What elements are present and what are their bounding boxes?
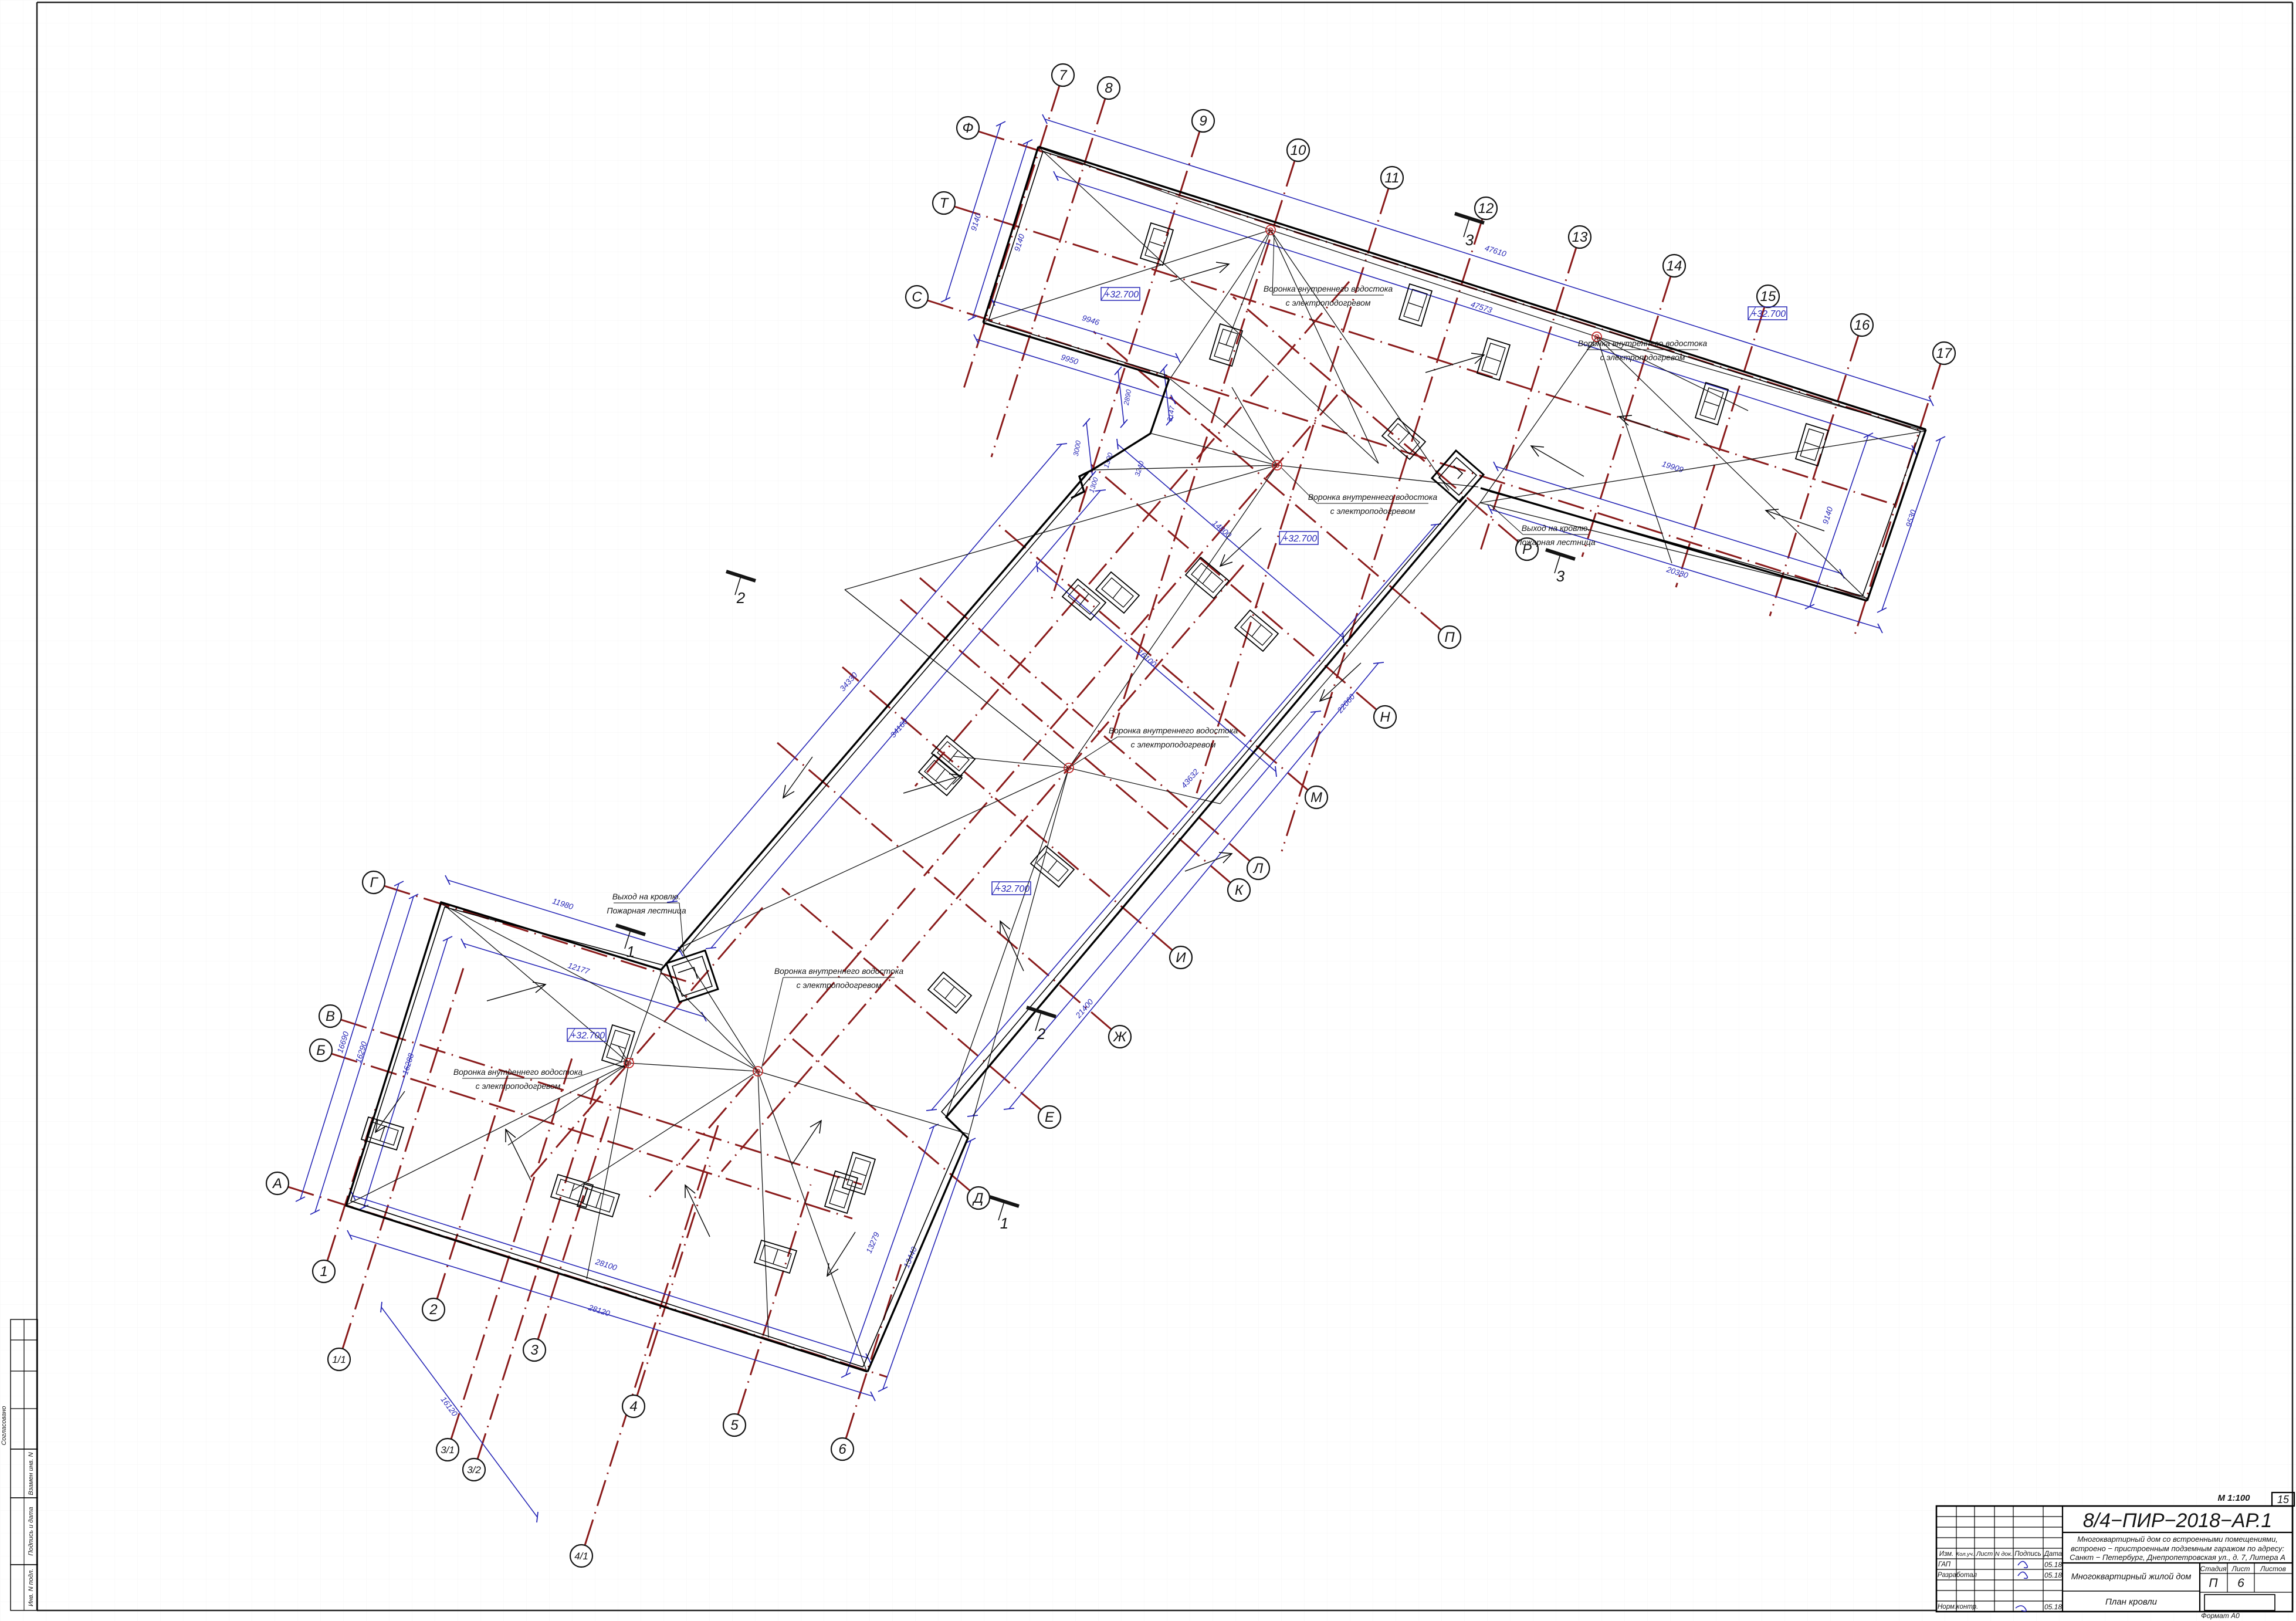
svg-text:Лист: Лист [2231,1565,2250,1573]
svg-text:Многоквартирный дом со встроен: Многоквартирный дом со встроенными помещ… [2077,1535,2278,1544]
svg-text:с электроподогревом: с электроподогревом [1286,298,1371,307]
svg-text:Л: Л [1252,861,1264,877]
svg-text:6: 6 [2237,1576,2244,1590]
svg-text:М: М [1310,790,1322,806]
svg-text:Воронка внутреннего водостока: Воронка внутреннего водостока [1109,726,1238,735]
svg-text:14: 14 [1667,258,1682,274]
svg-text:Лист: Лист [1976,1551,1993,1558]
svg-text:П: П [1444,630,1455,645]
svg-text:Согласовано: Согласовано [1,1406,8,1445]
svg-text:3/2: 3/2 [467,1464,481,1476]
svg-text:1: 1 [1000,1214,1008,1232]
svg-text:Разработал: Разработал [1938,1572,1977,1579]
svg-text:М 1:100: М 1:100 [2217,1493,2250,1503]
svg-text:с электроподогревом: с электроподогревом [1600,353,1685,362]
svg-text:05.18: 05.18 [2044,1571,2062,1579]
svg-text:+32.700: +32.700 [1752,309,1786,319]
svg-text:Листов: Листов [2260,1565,2286,1573]
svg-text:В: В [326,1009,335,1024]
svg-text:6: 6 [838,1441,846,1457]
svg-text:Ф: Ф [962,120,973,136]
svg-text:4/1: 4/1 [574,1551,588,1562]
svg-text:встроено − пристроенным подзем: встроено − пристроенным подземным гаражо… [2071,1544,2284,1553]
svg-text:05.18: 05.18 [2044,1561,2062,1569]
svg-text:11: 11 [1385,170,1400,186]
svg-text:Г: Г [370,875,378,891]
svg-text:5: 5 [730,1417,739,1433]
svg-text:П: П [2209,1576,2218,1590]
svg-text:8: 8 [1105,80,1113,96]
svg-text:+32.700: +32.700 [571,1031,605,1041]
svg-text:+32.700: +32.700 [1283,534,1317,544]
svg-text:Формат А0: Формат А0 [2201,1612,2240,1620]
svg-text:Норм.контр.: Норм.контр. [1938,1603,1978,1610]
svg-text:+32.700: +32.700 [1105,290,1139,300]
svg-text:Воронка внутреннего водостока: Воронка внутреннего водостока [1264,284,1393,293]
svg-text:05.18: 05.18 [2044,1603,2062,1611]
svg-text:Воронка внутреннего водостока: Воронка внутреннего водостока [1308,492,1438,502]
svg-text:2: 2 [736,589,746,607]
svg-text:Б: Б [316,1043,326,1058]
svg-text:17: 17 [1936,346,1953,361]
svg-text:Воронка внутреннего водостока: Воронка внутреннего водостока [453,1067,583,1077]
svg-text:Ж: Ж [1113,1029,1127,1045]
svg-text:Многоквартирный жилой дом: Многоквартирный жилой дом [2071,1572,2192,1582]
svg-text:3: 3 [1556,567,1565,585]
svg-text:3/1: 3/1 [441,1444,455,1456]
svg-text:3: 3 [530,1342,539,1358]
svg-text:А: А [272,1176,282,1192]
svg-text:Воронка внутреннего водостока: Воронка внутреннего водостока [1578,339,1708,348]
svg-text:С: С [912,289,922,305]
svg-text:15: 15 [2277,1494,2290,1505]
svg-text:Стадия: Стадия [2200,1565,2227,1573]
svg-text:9: 9 [1199,113,1207,129]
svg-text:8/4−ПИР−2018−АР.1: 8/4−ПИР−2018−АР.1 [2083,1510,2273,1532]
svg-text:Подпись и дата: Подпись и дата [28,1507,35,1555]
svg-text:с электроподогревом: с электроподогревом [476,1081,561,1091]
svg-text:2: 2 [1037,1025,1046,1043]
svg-text:Выход на кровлю.: Выход на кровлю. [612,892,681,901]
svg-text:Пожарная лестница: Пожарная лестница [1516,537,1596,547]
svg-text:И: И [1176,950,1186,966]
svg-text:Е: Е [1045,1109,1055,1125]
svg-text:1: 1 [627,943,635,960]
svg-text:Изм.: Изм. [1939,1551,1954,1558]
svg-text:4: 4 [629,1399,637,1414]
svg-text:10: 10 [1291,143,1306,158]
svg-text:16: 16 [1854,317,1870,333]
svg-text:Н: Н [1380,709,1390,725]
svg-text:Д: Д [972,1190,984,1206]
svg-text:Санкт − Петербург, Днепропетро: Санкт − Петербург, Днепропетровская ул.,… [2070,1553,2285,1562]
svg-text:Дата: Дата [2043,1551,2062,1558]
svg-text:Т: Т [940,195,950,211]
svg-text:Пожарная лестница: Пожарная лестница [607,906,686,915]
svg-text:2: 2 [429,1302,437,1318]
svg-text:12: 12 [1478,201,1494,216]
svg-text:3: 3 [1465,231,1474,249]
svg-text:13: 13 [1572,229,1588,245]
svg-text:Инв. N подл.: Инв. N подл. [28,1569,35,1606]
svg-text:Выход на кровлю.: Выход на кровлю. [1522,523,1590,533]
svg-text:План кровли: План кровли [2105,1597,2158,1607]
svg-text:ГАП: ГАП [1938,1561,1951,1568]
svg-text:с электроподогревом: с электроподогревом [1330,506,1415,516]
svg-text:Воронка внутреннего водостока: Воронка внутреннего водостока [774,966,904,976]
svg-text:1/1: 1/1 [332,1354,346,1365]
svg-text:1: 1 [320,1264,327,1280]
svg-text:7: 7 [1059,67,1068,83]
svg-text:Подпись: Подпись [2014,1551,2041,1558]
svg-text:15: 15 [1760,289,1776,304]
svg-text:Кол.уч.: Кол.уч. [1956,1551,1975,1558]
svg-text:N док.: N док. [1995,1551,2013,1558]
svg-text:с электроподогревом: с электроподогревом [1131,740,1216,749]
svg-text:К: К [1235,882,1244,898]
svg-text:с электроподогревом: с электроподогревом [797,980,882,990]
svg-text:Взамен инв. N: Взамен инв. N [28,1452,35,1495]
svg-text:+32.700: +32.700 [995,884,1030,894]
